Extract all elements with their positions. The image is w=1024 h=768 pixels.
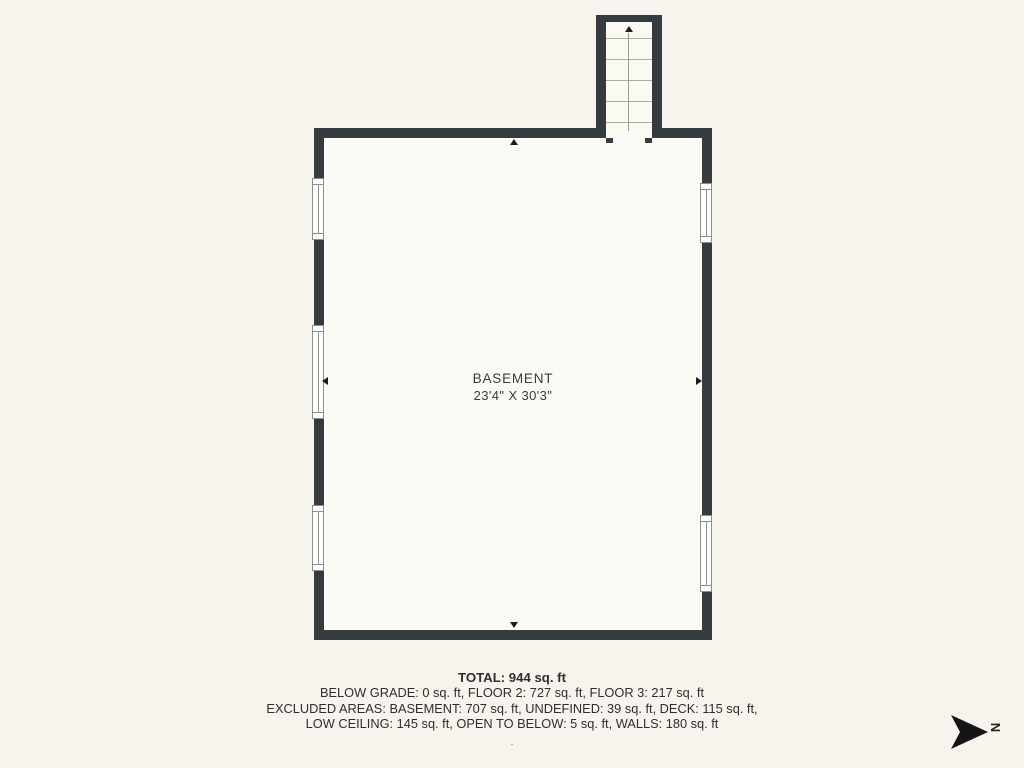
window-symbol bbox=[700, 183, 712, 243]
window-symbol bbox=[312, 325, 324, 419]
stair-opening-notch bbox=[606, 138, 613, 143]
stair-step-line bbox=[606, 80, 652, 81]
room-dimensions: 23'4" X 30'3" bbox=[324, 387, 702, 404]
floor-plan-page: BASEMENT 23'4" X 30'3" TOTAL: 944 sq. ft… bbox=[0, 0, 1024, 768]
dimension-arrow-down-icon bbox=[510, 622, 518, 628]
stair-step-line bbox=[606, 59, 652, 60]
window-symbol bbox=[312, 178, 324, 240]
stair-step-line bbox=[606, 101, 652, 102]
room-name: BASEMENT bbox=[324, 370, 702, 387]
window-symbol bbox=[312, 505, 324, 571]
stair-direction-line bbox=[628, 33, 629, 131]
summary-total: TOTAL: 944 sq. ft bbox=[0, 670, 1024, 685]
stair-wall-top bbox=[596, 15, 662, 22]
dimension-arrow-up-icon bbox=[510, 139, 518, 145]
stair-step-line bbox=[606, 122, 652, 123]
wall-top-left-segment bbox=[314, 128, 606, 138]
wall-bottom bbox=[314, 630, 712, 640]
summary-footnote: . bbox=[0, 737, 1024, 748]
stair-up-arrow-icon bbox=[625, 26, 633, 32]
north-arrow-icon: N bbox=[950, 712, 1012, 760]
stair-wall-right bbox=[652, 15, 662, 138]
compass-north-letter: N bbox=[988, 723, 1003, 732]
summary-line: EXCLUDED AREAS: BASEMENT: 707 sq. ft, UN… bbox=[0, 701, 1024, 716]
summary-line: LOW CEILING: 145 sq. ft, OPEN TO BELOW: … bbox=[0, 716, 1024, 731]
window-symbol bbox=[700, 515, 712, 592]
summary-line: BELOW GRADE: 0 sq. ft, FLOOR 2: 727 sq. … bbox=[0, 685, 1024, 700]
area-summary: TOTAL: 944 sq. ft BELOW GRADE: 0 sq. ft,… bbox=[0, 670, 1024, 731]
stair-opening-notch bbox=[645, 138, 652, 143]
north-arrow-glyph bbox=[950, 712, 990, 752]
stair-wall-left bbox=[596, 15, 606, 138]
room-label: BASEMENT 23'4" X 30'3" bbox=[324, 370, 702, 404]
stair-step-line bbox=[606, 38, 652, 39]
